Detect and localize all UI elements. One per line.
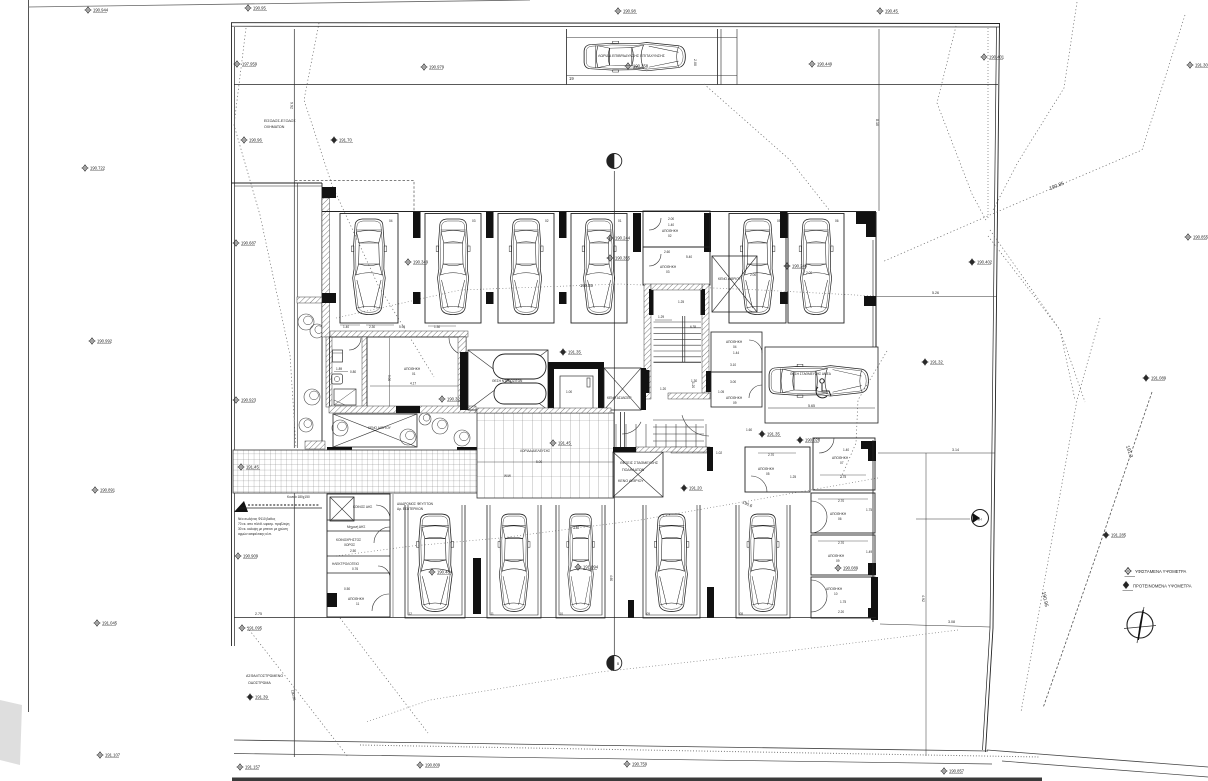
svg-text:1.44: 1.44	[733, 351, 739, 355]
svg-text:191.300: 191.300	[1195, 63, 1208, 68]
svg-text:ΠΟΔΗΛΑΤΩΝ: ΠΟΔΗΛΑΤΩΝ	[622, 468, 645, 472]
svg-text:10: 10	[834, 592, 838, 596]
svg-text:09: 09	[733, 401, 737, 405]
svg-text:190.349: 190.349	[413, 260, 429, 265]
svg-text:191.157: 191.157	[245, 765, 261, 770]
svg-text:ΑΠΟΘΗΚΗ: ΑΠΟΘΗΚΗ	[348, 597, 365, 601]
svg-text:190.979: 190.979	[429, 65, 445, 70]
svg-text:190.992: 190.992	[97, 339, 113, 344]
svg-text:30 εκ. καλυψη με μπετον με χρώ: 30 εκ. καλυψη με μπετον με χρώση	[238, 527, 288, 531]
svg-text:1.75: 1.75	[866, 508, 872, 512]
svg-text:191.35: 191.35	[767, 432, 780, 437]
svg-text:ΚΕΝΟ ΑΙΘΡΙΟΥ: ΚΕΝΟ ΑΙΘΡΙΟΥ	[718, 277, 742, 281]
svg-text:2.50: 2.50	[350, 549, 356, 553]
svg-text:ΘΕΣΕΙΣ ΣΤΑΘΜΕΥΣΗΣ: ΘΕΣΕΙΣ ΣΤΑΘΜΕΥΣΗΣ	[620, 461, 659, 465]
svg-text:1.20: 1.20	[691, 382, 695, 388]
svg-text:07: 07	[840, 461, 844, 465]
svg-text:02: 02	[545, 219, 549, 223]
svg-text:191.20: 191.20	[689, 486, 702, 491]
svg-text:197.959: 197.959	[242, 62, 258, 67]
svg-text:190.401: 190.401	[989, 55, 1005, 60]
svg-text:ΑΠΟΘΗΚΗ: ΑΠΟΘΗΚΗ	[660, 265, 677, 269]
svg-text:09: 09	[836, 559, 840, 563]
svg-text:06: 06	[838, 517, 842, 521]
svg-text:04: 04	[733, 345, 737, 349]
svg-text:2.60: 2.60	[664, 250, 670, 254]
svg-text:1.60: 1.60	[746, 428, 752, 432]
svg-text:1.40: 1.40	[668, 223, 674, 227]
svg-text:2.70: 2.70	[768, 453, 774, 457]
svg-text:2.75: 2.75	[255, 612, 262, 616]
svg-text:2.75: 2.75	[840, 475, 846, 479]
svg-text:2.30: 2.30	[369, 325, 375, 329]
svg-text:ΑΠΟΘΗΚΗ: ΑΠΟΘΗΚΗ	[832, 456, 849, 460]
svg-text:1.75: 1.75	[840, 600, 846, 604]
svg-text:4.92: 4.92	[921, 595, 925, 602]
svg-text:ΑΠΟΘΗΚΗ: ΑΠΟΘΗΚΗ	[830, 512, 847, 516]
svg-text:1.40: 1.40	[343, 325, 349, 329]
svg-text:191.45: 191.45	[246, 465, 259, 470]
svg-text:08: 08	[740, 612, 744, 616]
svg-text:4.17: 4.17	[410, 382, 416, 386]
svg-text:2.70: 2.70	[838, 499, 844, 503]
svg-text:04: 04	[389, 219, 393, 223]
svg-text:191.095: 191.095	[247, 626, 263, 631]
svg-text:191.45: 191.45	[558, 441, 571, 446]
svg-text:5.40: 5.40	[686, 255, 692, 259]
svg-text:0.50: 0.50	[344, 587, 350, 591]
svg-text:190.809: 190.809	[425, 763, 441, 768]
svg-text:01: 01	[412, 372, 416, 376]
svg-text:ΠΡΟΤΕΙΝΟΜΕΝΑ ΥΨΟΜΕΤΡΑ: ΠΡΟΤΕΙΝΟΜΕΝΑ ΥΨΟΜΕΤΡΑ	[1133, 584, 1192, 589]
svg-text:4.60: 4.60	[609, 575, 613, 581]
svg-text:190.855: 190.855	[1193, 235, 1208, 240]
svg-text:2.00: 2.00	[693, 59, 697, 66]
svg-text:12: 12	[409, 612, 413, 616]
svg-text:190.687: 190.687	[241, 241, 257, 246]
svg-text:11: 11	[356, 602, 360, 606]
svg-text:191.107: 191.107	[105, 753, 121, 758]
svg-text:06: 06	[835, 219, 839, 223]
svg-text:ΟΧΗΜΑΤΩΝ: ΟΧΗΜΑΤΩΝ	[264, 125, 285, 129]
svg-text:190.249: 190.249	[792, 264, 808, 269]
svg-text:3.14: 3.14	[952, 448, 959, 452]
svg-text:190.449: 190.449	[817, 62, 833, 67]
svg-text:1.20: 1.20	[660, 387, 666, 391]
svg-text:ΑΠΟΘΗΚΗ: ΑΠΟΘΗΚΗ	[758, 467, 775, 471]
svg-text:191.089: 191.089	[1151, 376, 1167, 381]
svg-text:70 εκ. απο πλίνθ. υφασμ. προβλ: 70 εκ. απο πλίνθ. υφασμ. προβλεψη	[238, 522, 290, 526]
svg-text:1.05: 1.05	[718, 390, 724, 394]
svg-text:190.923: 190.923	[241, 398, 257, 403]
svg-text:191.285: 191.285	[1111, 533, 1127, 538]
svg-text:191.045: 191.045	[102, 621, 118, 626]
svg-text:10: 10	[560, 612, 564, 616]
svg-text:9.92: 9.92	[290, 102, 294, 109]
svg-text:2.00: 2.00	[668, 217, 674, 221]
svg-text:190.722: 190.722	[90, 166, 106, 171]
svg-text:Αρ. ΕΣΩΤΕΡΙΚΩΝ: Αρ. ΕΣΩΤΕΡΙΚΩΝ	[397, 507, 424, 511]
svg-text:190.402: 190.402	[977, 260, 993, 265]
svg-text:W/W: W/W	[504, 474, 511, 478]
svg-text:ΗΛΕΚΤΡΟΛΟΓΕΙΟ: ΗΛΕΚΤΡΟΛΟΓΕΙΟ	[332, 562, 359, 566]
svg-text:191.39: 191.39	[255, 695, 268, 700]
svg-text:190.857: 190.857	[949, 769, 965, 774]
svg-text:09: 09	[647, 612, 651, 616]
svg-text:1.49: 1.49	[866, 550, 872, 554]
svg-text:190.45: 190.45	[885, 9, 898, 14]
svg-text:5.00: 5.00	[536, 460, 542, 464]
svg-text:ΚΟΙΝΟΧΡΗΣΤΟΣ: ΚΟΙΝΟΧΡΗΣΤΟΣ	[336, 538, 361, 542]
svg-text:ΑΠΟΘΗΚΗ: ΑΠΟΘΗΚΗ	[404, 367, 421, 371]
svg-text:ΚΕΝΟ ΑΣΑΝΣΕΡ: ΚΕΝΟ ΑΣΑΝΣΕΡ	[607, 396, 632, 400]
svg-text:6.35: 6.35	[690, 325, 696, 329]
svg-text:ΧΩΡΟΣ: ΧΩΡΟΣ	[344, 543, 355, 547]
svg-text:αρμών ασφαλτικης κλπ.: αρμών ασφαλτικης κλπ.	[238, 532, 272, 536]
svg-text:ΚΟΙΝΟΣ ΑΗΣ: ΚΟΙΝΟΣ ΑΗΣ	[353, 505, 372, 509]
svg-text:19: 19	[569, 76, 574, 81]
svg-text:3.00: 3.00	[730, 380, 736, 384]
svg-text:1.25: 1.25	[790, 475, 796, 479]
svg-text:ΑΣΦΑΛΤΟΣΤΡΩΜΕΝΟ: ΑΣΦΑΛΤΟΣΤΡΩΜΕΝΟ	[246, 674, 283, 678]
svg-text:ΑΠΟΘΗΚΗ: ΑΠΟΘΗΚΗ	[662, 229, 679, 233]
svg-text:2.40: 2.40	[573, 526, 579, 530]
svg-text:190.358: 190.358	[633, 64, 649, 69]
svg-text:1.00: 1.00	[566, 390, 572, 394]
svg-text:191.35: 191.35	[568, 350, 581, 355]
svg-text:1.30: 1.30	[434, 325, 440, 329]
svg-text:5.26: 5.26	[932, 291, 939, 295]
svg-text:1.40: 1.40	[843, 448, 849, 452]
svg-text:8.10: 8.10	[875, 119, 879, 126]
svg-text:191.70: 191.70	[339, 138, 352, 143]
svg-text:1.29: 1.29	[658, 315, 664, 319]
svg-text:01: 01	[618, 219, 622, 223]
svg-text:ΚΕΝΟ ΑΙΘΡΙΟΥ: ΚΕΝΟ ΑΙΘΡΙΟΥ	[368, 426, 392, 430]
svg-text:5.00: 5.00	[387, 375, 391, 381]
svg-text:03: 03	[666, 270, 670, 274]
svg-text:ΔΙΑΔΡΟΜΟΣ ΦΕΥΓΙΤΩΝ: ΔΙΑΔΡΟΜΟΣ ΦΕΥΓΙΤΩΝ	[397, 502, 434, 506]
svg-text:03: 03	[472, 219, 476, 223]
svg-text:ΥΦΙΣΤΑΜΕΝΑ ΥΨΟΜΕΤΡΑ: ΥΦΙΣΤΑΜΕΝΑ ΥΨΟΜΕΤΡΑ	[1135, 569, 1187, 574]
svg-text:02: 02	[668, 234, 672, 238]
svg-text:1.89: 1.89	[336, 367, 342, 371]
svg-text:3.08: 3.08	[948, 620, 955, 624]
svg-text:ΕΙΣΟΔΟΣ-ΕΞΟΔΟΣ: ΕΙΣΟΔΟΣ-ΕΞΟΔΟΣ	[264, 119, 296, 123]
svg-text:ΝΗ: ΝΗ	[977, 518, 982, 522]
svg-text:ΛΩΡΙΔΑ ΔΙΕΛΕΥΣΗΣ: ΛΩΡΙΔΑ ΔΙΕΛΕΥΣΗΣ	[520, 449, 550, 453]
svg-text:11: 11	[491, 612, 495, 616]
svg-text:190.244: 190.244	[615, 236, 631, 241]
svg-text:190.96: 190.96	[249, 138, 262, 143]
svg-text:5.65: 5.65	[808, 404, 815, 408]
svg-text:ΛΩΡΙΔΑ ΕΠΙΒΡΑΔΥΝΣΗΣ ΕΠΙΤΑΧΥΝΣΗ: ΛΩΡΙΔΑ ΕΠΙΒΡΑΔΥΝΣΗΣ ΕΠΙΤΑΧΥΝΣΗΣ	[598, 54, 666, 58]
svg-text:05: 05	[766, 472, 770, 476]
svg-text:ΑΠΟΘΗΚΗ: ΑΠΟΘΗΚΗ	[726, 396, 743, 400]
svg-text:3.10: 3.10	[730, 363, 736, 367]
svg-text:2.20: 2.20	[838, 610, 844, 614]
svg-text:ΚΕΝΟ ΑΙΘΡΙΟΥ: ΚΕΝΟ ΑΙΘΡΙΟΥ	[618, 479, 644, 483]
svg-text:190.891: 190.891	[100, 488, 116, 493]
svg-text:ΑΠΟΘΗΚΗ: ΑΠΟΘΗΚΗ	[828, 554, 845, 558]
svg-text:2.00: 2.00	[750, 273, 756, 277]
svg-text:ΑΠΟΘΗΚΗ: ΑΠΟΘΗΚΗ	[726, 340, 743, 344]
svg-text:190.944: 190.944	[93, 8, 109, 13]
svg-text:ΟΔΟΣΤΡΩΜΑ: ΟΔΟΣΤΡΩΜΑ	[248, 681, 271, 685]
svg-text:0.76: 0.76	[352, 567, 358, 571]
svg-text:ΑΠΟΘΗΚΗ: ΑΠΟΘΗΚΗ	[826, 587, 843, 591]
svg-text:190.35: 190.35	[580, 283, 593, 288]
svg-text:190.759: 190.759	[632, 762, 648, 767]
svg-text:190.95: 190.95	[253, 6, 266, 11]
svg-text:190.98: 190.98	[623, 9, 636, 14]
svg-text:ΘΕΣΗ ΝΤΕΠΟΖΙΤΩΝ: ΘΕΣΗ ΝΤΕΠΟΖΙΤΩΝ	[492, 379, 523, 383]
svg-text:Κονικά 180χ150: Κονικά 180χ150	[287, 495, 310, 499]
svg-text:1.25: 1.25	[678, 300, 684, 304]
svg-text:B: B	[617, 662, 619, 666]
svg-text:2.00: 2.00	[806, 271, 812, 275]
svg-text:1.02: 1.02	[716, 451, 722, 455]
svg-text:191.32: 191.32	[930, 360, 943, 365]
svg-text:2.70: 2.70	[838, 541, 844, 545]
svg-text:0.80: 0.80	[350, 370, 356, 374]
svg-text:ΘΕΣΗ ΣΤΑΘΜΕΥΣΗΣ ΑΜΕΑ: ΘΕΣΗ ΣΤΑΘΜΕΥΣΗΣ ΑΜΕΑ	[790, 372, 832, 376]
svg-text:190.909: 190.909	[243, 554, 259, 559]
svg-text:Μηχανή ΑΗΣ: Μηχανή ΑΗΣ	[347, 525, 365, 529]
svg-text:190.089: 190.089	[843, 566, 859, 571]
svg-text:190.484: 190.484	[437, 570, 453, 575]
svg-text:191.094: 191.094	[583, 565, 599, 570]
svg-text:190.355: 190.355	[615, 256, 631, 261]
svg-text:5.99: 5.99	[399, 325, 405, 329]
svg-text:Νέο σωλήνας Φ110 βαθος: Νέο σωλήνας Φ110 βαθος	[238, 517, 276, 521]
